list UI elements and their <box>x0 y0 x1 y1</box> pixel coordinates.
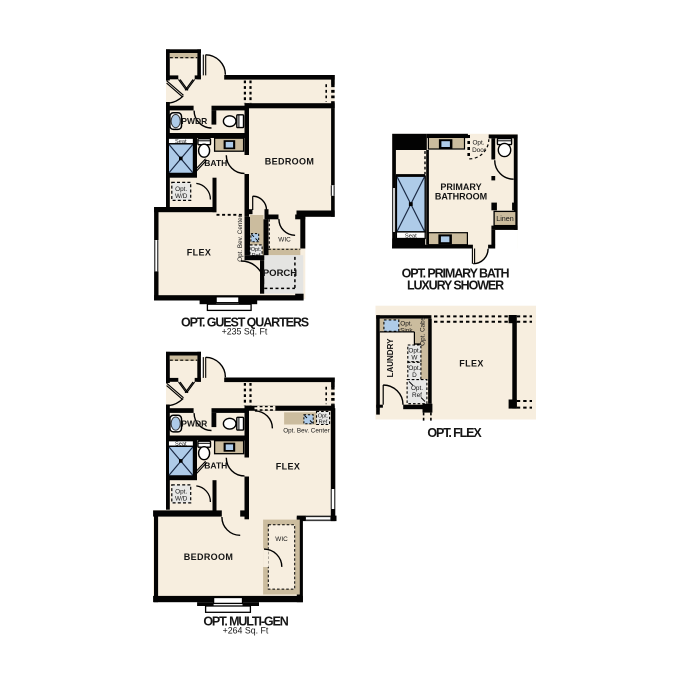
svg-text:WIC: WIC <box>278 237 291 244</box>
svg-text:PWDR: PWDR <box>181 418 207 428</box>
svg-text:Opt.: Opt. <box>175 488 187 495</box>
svg-text:BEDROOM: BEDROOM <box>265 157 314 167</box>
svg-text:LAUNDRY: LAUNDRY <box>386 338 395 377</box>
svg-text:+264 Sq. Ft: +264 Sq. Ft <box>223 626 269 636</box>
svg-text:PORCH: PORCH <box>263 268 297 279</box>
svg-text:W: W <box>411 355 418 362</box>
svg-text:BATHROOM: BATHROOM <box>435 191 487 201</box>
svg-text:Ref: Ref <box>412 392 422 399</box>
svg-text:Opt.: Opt. <box>472 140 484 147</box>
svg-text:FLEX: FLEX <box>276 462 300 472</box>
svg-text:Sink: Sink <box>400 327 413 334</box>
svg-text:Opt.: Opt. <box>175 186 187 193</box>
svg-text:Opt.: Opt. <box>408 365 420 372</box>
svg-text:Door: Door <box>472 147 487 154</box>
svg-text:Opt. Cabs: Opt. Cabs <box>420 317 427 346</box>
svg-text:BATH: BATH <box>204 461 227 471</box>
svg-text:Opt. Bev. Center: Opt. Bev. Center <box>283 428 329 435</box>
svg-text:Opt.: Opt. <box>318 413 329 419</box>
svg-text:LUXURY SHOWER: LUXURY SHOWER <box>407 279 504 293</box>
svg-text:+235 Sq. Ft: +235 Sq. Ft <box>222 327 268 337</box>
svg-text:W/D: W/D <box>175 495 188 502</box>
svg-text:Opt.: Opt. <box>411 385 423 392</box>
svg-text:Linen: Linen <box>496 214 514 223</box>
svg-text:PWDR: PWDR <box>181 116 207 126</box>
svg-text:OPT. FLEX: OPT. FLEX <box>427 426 482 440</box>
svg-text:BATH: BATH <box>204 158 227 168</box>
svg-text:FLEX: FLEX <box>187 247 211 257</box>
svg-text:WIC: WIC <box>275 536 288 543</box>
svg-text:FLEX: FLEX <box>459 359 483 369</box>
svg-text:W/D: W/D <box>175 193 188 200</box>
svg-text:D: D <box>412 372 417 379</box>
svg-text:Opt.: Opt. <box>408 347 420 354</box>
svg-text:Ref: Ref <box>319 419 328 425</box>
svg-text:Opt. Bev. Center: Opt. Bev. Center <box>237 215 244 261</box>
svg-text:Opt.: Opt. <box>251 247 262 253</box>
svg-text:Opt.: Opt. <box>400 320 412 327</box>
svg-text:BEDROOM: BEDROOM <box>184 552 233 562</box>
